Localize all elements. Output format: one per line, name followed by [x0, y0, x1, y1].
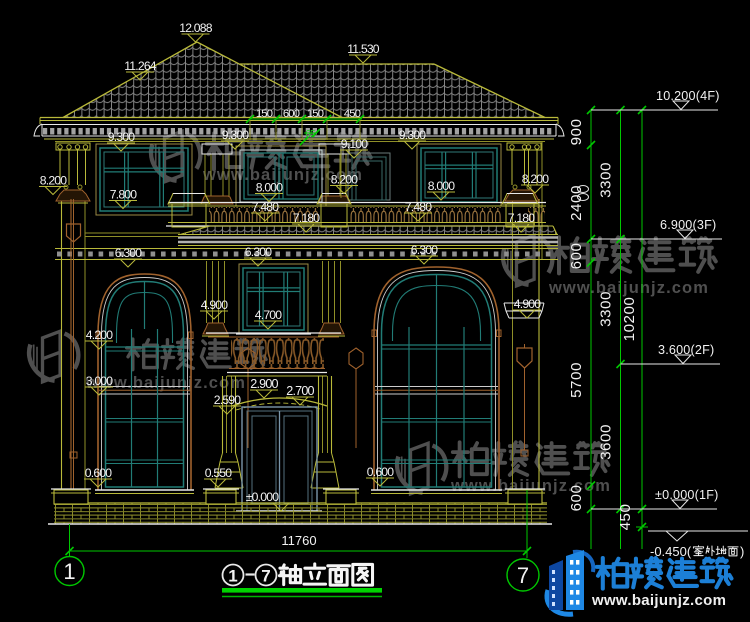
svg-text:8.000: 8.000 [256, 181, 284, 195]
svg-text:3.000: 3.000 [86, 374, 114, 388]
svg-text:0.550: 0.550 [205, 466, 233, 480]
svg-text:7.800: 7.800 [110, 188, 138, 202]
svg-text:9.300: 9.300 [399, 128, 427, 142]
svg-text:7.480: 7.480 [252, 200, 280, 214]
svg-text:3600: 3600 [598, 424, 615, 460]
svg-text:450: 450 [617, 504, 634, 531]
svg-text:10200: 10200 [621, 297, 638, 342]
svg-text:7: 7 [261, 567, 270, 586]
svg-text:12.088: 12.088 [179, 21, 212, 35]
svg-text:3300: 3300 [598, 291, 615, 327]
svg-text:2.700: 2.700 [286, 384, 314, 398]
svg-text:9.300: 9.300 [222, 128, 250, 142]
svg-text:600: 600 [283, 108, 300, 120]
svg-text:3300: 3300 [598, 162, 615, 198]
svg-text:8.200: 8.200 [522, 172, 550, 186]
svg-text:9.100: 9.100 [341, 137, 369, 151]
svg-text:±0.000: ±0.000 [246, 490, 279, 504]
svg-text:8.200: 8.200 [40, 174, 68, 188]
svg-text:1: 1 [228, 567, 237, 586]
svg-text:2.900: 2.900 [250, 377, 278, 391]
svg-text:150: 150 [307, 108, 324, 120]
svg-text:www.baijunjz.com: www.baijunjz.com [548, 279, 709, 297]
svg-text:7.480: 7.480 [405, 200, 433, 214]
svg-text:5700: 5700 [568, 362, 585, 398]
svg-text:11760: 11760 [281, 533, 316, 548]
svg-text:6.300: 6.300 [411, 243, 439, 257]
svg-text:6.300: 6.300 [115, 246, 143, 260]
svg-text:150: 150 [256, 108, 273, 120]
svg-text:600: 600 [568, 243, 585, 270]
svg-text:900: 900 [568, 119, 585, 146]
svg-text:7: 7 [517, 563, 529, 588]
svg-text:4.900: 4.900 [514, 297, 542, 311]
svg-text:8.000: 8.000 [428, 179, 456, 193]
svg-text:2400: 2400 [568, 185, 585, 221]
svg-text:0.600: 0.600 [367, 465, 395, 479]
svg-text:6.300: 6.300 [245, 245, 273, 259]
svg-text:600: 600 [568, 485, 585, 512]
svg-text:7.180: 7.180 [508, 211, 536, 225]
svg-text:1: 1 [63, 559, 75, 584]
svg-text:www.baijunjz.com: www.baijunjz.com [591, 592, 726, 609]
svg-text:7.180: 7.180 [293, 211, 321, 225]
svg-text:9.300: 9.300 [108, 130, 136, 144]
svg-text:): ) [740, 544, 744, 559]
svg-text:0.600: 0.600 [85, 466, 113, 480]
svg-text:2.590: 2.590 [214, 393, 242, 407]
svg-text:4.200: 4.200 [86, 328, 114, 342]
svg-text:4.900: 4.900 [201, 298, 229, 312]
svg-text:8.200: 8.200 [331, 173, 359, 187]
svg-text:4.700: 4.700 [255, 308, 283, 322]
svg-text:11.530: 11.530 [347, 42, 380, 56]
svg-text:450: 450 [344, 108, 361, 120]
svg-text:11.264: 11.264 [124, 59, 157, 73]
